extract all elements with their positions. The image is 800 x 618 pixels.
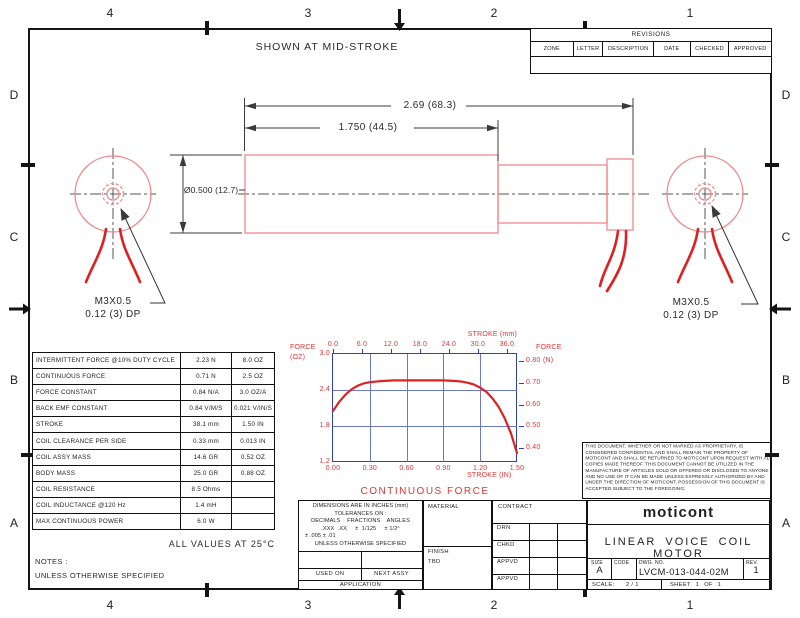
divider — [493, 540, 586, 541]
chart-tick-label-right: 0.50 — [526, 422, 540, 429]
chart-tick-mark-right — [519, 383, 524, 384]
finish-label: FINISH — [428, 549, 449, 555]
divider — [588, 579, 769, 580]
dwg-no-label: DWG. NO. — [639, 560, 665, 566]
divider — [588, 524, 769, 525]
chart-right-axis-unit: (N) — [543, 357, 553, 364]
chart-tick-label-top: 24.0 — [437, 341, 461, 348]
chart-tick-mark-right — [519, 426, 524, 427]
chart-tick-mark-right — [519, 405, 524, 406]
chart-top-axis-label: STROKE (mm) — [433, 331, 517, 338]
chart-tick-label-bottom: 0.30 — [356, 465, 384, 472]
legal-text: THIS DOCUMENT, WHETHER OR NOT MARKED AS … — [583, 443, 771, 494]
tolerance-line: ± .005 ± .01 — [299, 533, 422, 541]
divider — [529, 523, 530, 589]
divider — [493, 574, 586, 575]
chart-curve — [333, 354, 517, 462]
chart-tick-label-bottom: 1.50 — [503, 465, 531, 472]
title-block: moticont LINEAR VOICE COIL MOTOR SIZE A … — [587, 500, 770, 590]
chart-tick-mark-top — [333, 349, 334, 353]
dwg-no-value: LVCM-013-044-02M — [639, 567, 729, 577]
chart-tick-mark-top — [362, 349, 363, 353]
divider — [424, 546, 491, 547]
chart-tick-mark-top — [478, 349, 479, 353]
company-logo: moticont — [588, 504, 769, 521]
finish-value: TBD — [428, 559, 441, 565]
tolerance-line: DECIMALS FRACTIONS ANGLES — [299, 518, 422, 526]
divider — [636, 558, 637, 579]
chart-tick-label-left: 1.8 — [301, 422, 330, 429]
legal-notice: THIS DOCUMENT, WHETHER OR NOT MARKED AS … — [582, 442, 771, 499]
chart-tick-label-right: 0.40 — [526, 444, 540, 451]
used-on-label: USED ON — [299, 571, 361, 577]
chart-title: CONTINUOUS FORCE — [333, 486, 517, 497]
chart-tick-mark-top — [420, 349, 421, 353]
material-block: MATERIAL FINISH TBD — [423, 500, 492, 590]
chart-tick-label-bottom: 0.60 — [393, 465, 421, 472]
chart-bottom-axis-label: STROKE (IN) — [467, 472, 512, 479]
chart-tick-mark-top — [507, 349, 508, 353]
chart-tick-label-left: 2.4 — [301, 386, 330, 393]
divider — [661, 579, 662, 589]
chart-tick-mark-right — [519, 361, 524, 362]
chart-tick-mark-top — [449, 349, 450, 353]
divider — [557, 523, 558, 589]
tolerance-lines: DIMENSIONS ARE IN INCHES (mm)TOLERANCES … — [299, 501, 422, 549]
chart-left-axis-unit: (OZ) — [290, 354, 305, 361]
chart-tick-label-left: 3.0 — [301, 350, 330, 357]
size-value: A — [588, 565, 611, 576]
drawing-title: LINEAR VOICE COIL MOTOR — [588, 536, 769, 560]
chart-tick-label-bottom: 1.20 — [466, 465, 494, 472]
divider — [299, 568, 422, 569]
divider — [493, 557, 586, 558]
approval-row-label: APPVD — [497, 559, 518, 565]
application-label: APPLICATION — [299, 582, 422, 588]
sheet-value: SHEET 1 OF 1 — [670, 582, 721, 588]
chart-tick-mark-right — [519, 448, 524, 449]
chart-tick-mark-top — [391, 349, 392, 353]
chart-tick-label-top: 36.0 — [495, 341, 519, 348]
chart-tick-label-top: 18.0 — [408, 341, 432, 348]
divider — [611, 558, 612, 579]
drawing-sheet: 44332211DDCCBBAA — [0, 0, 800, 618]
code-label: CODE — [614, 560, 629, 566]
contract-label: CONTRACT — [498, 504, 533, 510]
rev-value: 1 — [743, 565, 769, 576]
tolerance-line: DIMENSIONS ARE IN INCHES (mm) — [299, 503, 422, 511]
chart-tick-label-bottom: 0.00 — [319, 465, 347, 472]
chart-left-axis-label: FORCE — [290, 344, 316, 351]
chart-right-axis-label: FORCE — [536, 344, 562, 351]
tolerance-line: TOLERANCES ON : — [299, 511, 422, 519]
material-label: MATERIAL — [428, 504, 459, 510]
approval-row-label: CHKD — [497, 542, 515, 548]
contract-block: CONTRACT DRNCHKDAPPVDAPPVD — [492, 500, 587, 590]
chart-tick-label-top: 12.0 — [379, 341, 403, 348]
scale-label: SCALE: — [592, 582, 614, 588]
chart-tick-label-right: 0.60 — [526, 401, 540, 408]
chart-tick-label-top: 6.0 — [350, 341, 374, 348]
chart-tick-label-bottom: 0.90 — [429, 465, 457, 472]
tolerance-line: .XXX .XX ± 1/125 ± 1/2° — [299, 526, 422, 534]
chart-tick-label-top: 0.0 — [321, 341, 345, 348]
tolerance-line: UNLESS OTHERWISE SPECIFIED — [299, 541, 422, 549]
approval-row-label: DRN — [497, 525, 510, 531]
chart-tick-label-top: 30.0 — [466, 341, 490, 348]
approval-row-label: APPVD — [497, 576, 518, 582]
tolerance-block: DIMENSIONS ARE IN INCHES (mm)TOLERANCES … — [298, 500, 423, 590]
divider — [299, 580, 422, 581]
chart-tick-label-right: 0.80 — [526, 357, 540, 364]
divider — [493, 523, 586, 524]
chart-tick-label-right: 0.70 — [526, 379, 540, 386]
next-assy-label: NEXT ASSY — [361, 571, 422, 577]
scale-value: 2 / 1 — [626, 582, 639, 588]
chart-tick-label-left: 1.2 — [301, 458, 330, 465]
